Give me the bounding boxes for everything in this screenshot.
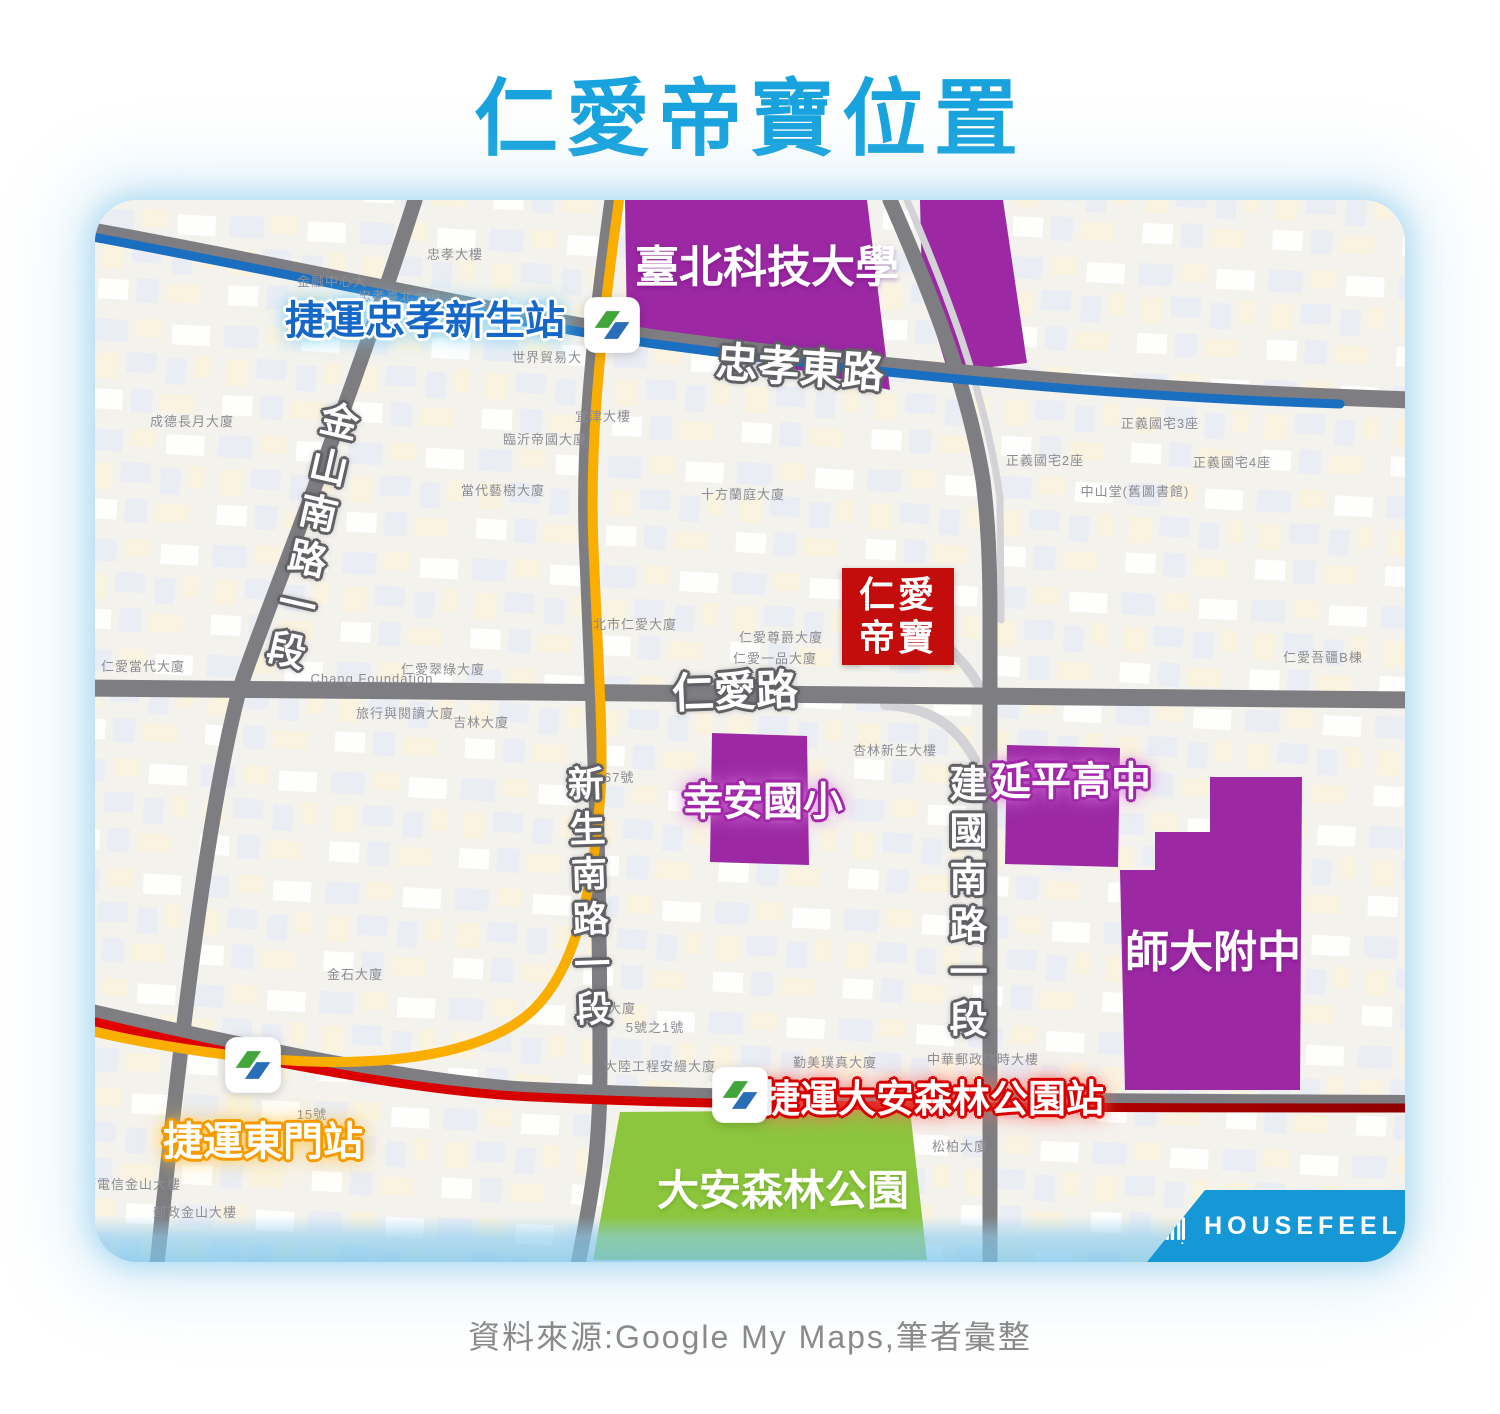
building-label: 中華電信金山大樓 <box>95 1178 181 1192</box>
place-label-shida-fuzhong: 師大附中 <box>1125 930 1301 976</box>
road-label-xinsheng-south-road-sec1: 新生南路一段 <box>563 764 610 1035</box>
station-label-mrt-zhongxiao-xinsheng: 捷運忠孝新生站 <box>285 300 565 342</box>
map-labels-layer: 忠孝大樓金融中心大忠孝臺北大廈世界貿易大宜津大樓成德長月大廈臨沂帝國大廈當代藝樹… <box>95 200 1405 1262</box>
housefeel-brand-text: HOUSEFEEL <box>1204 1212 1402 1241</box>
renai-dibao-badge: 仁愛 帝寶 <box>842 568 954 665</box>
building-label: 當代藝樹大廈 <box>461 484 545 498</box>
building-label: 松柏大廈 <box>932 1140 988 1154</box>
station-label-mrt-dongmen: 捷運東門站 <box>163 1121 363 1163</box>
building-label: 中山堂(舊圖書館) <box>1081 485 1190 499</box>
building-label: 十方蘭庭大廈 <box>701 488 785 502</box>
road-label-renai-road: 仁愛路 <box>671 668 798 716</box>
building-label: 大陸工程安縵大廈 <box>604 1060 716 1074</box>
building-label: 5號之1號 <box>626 1021 684 1035</box>
building-label: 金石大廈 <box>327 968 383 982</box>
road-label-jianguo-south-road-sec1: 建國南路一段 <box>943 764 983 1046</box>
mrt-station-icon-daan-forest-park <box>711 1066 769 1124</box>
taipei-metro-logo-icon <box>583 296 641 354</box>
building-label: 正義國宅4座 <box>1193 456 1271 470</box>
source-caption: 資料來源:Google My Maps,筆者彙整 <box>0 1312 1500 1358</box>
taipei-metro-logo-icon <box>224 1036 282 1094</box>
building-label: 正義國宅3座 <box>1121 417 1199 431</box>
building-label: 仁愛翠綠大廈 <box>401 663 485 677</box>
building-label: 正義國宅2座 <box>1006 454 1084 468</box>
place-label-xingan-elementary: 幸安國小 <box>683 781 843 823</box>
place-label-daan-forest-park: 大安森林公園 <box>657 1169 909 1213</box>
building-label: 中華郵政瑞時大樓 <box>927 1053 1039 1067</box>
place-label-taipei-tech: 臺北科技大學 <box>635 245 899 291</box>
building-label: 臨沂帝國大廈 <box>503 433 587 447</box>
building-label: 仁愛當代大廈 <box>101 660 185 674</box>
building-label: 杏林新生大樓 <box>853 744 937 758</box>
page-title: 仁愛帝寶位置 <box>0 52 1500 173</box>
badge-line1: 仁愛 <box>859 574 937 616</box>
building-label: 成德長月大廈 <box>150 415 234 429</box>
taipei-metro-logo-icon <box>711 1066 769 1124</box>
building-label: 仁愛尊爵大廈 <box>739 631 823 645</box>
building-label: 仁愛吾疆B棟 <box>1283 651 1363 665</box>
road-label-jinshan-south-road-sec1: 金山南路一段 <box>256 396 358 680</box>
map: 忠孝大樓金融中心大忠孝臺北大廈世界貿易大宜津大樓成德長月大廈臨沂帝國大廈當代藝樹… <box>95 200 1405 1262</box>
mrt-station-icon-zhongxiao-xinsheng <box>583 296 641 354</box>
building-label: 仁愛一品大廈 <box>733 652 817 666</box>
mrt-station-icon-dongmen <box>224 1036 282 1094</box>
road-label-zhongxiao-east-road: 忠孝東路 <box>715 340 886 396</box>
building-label: 勤美璞真大廈 <box>793 1056 877 1070</box>
building-label: 世界貿易大 <box>512 351 582 365</box>
building-label: 北市仁愛大廈 <box>593 618 677 632</box>
building-label: 宜津大樓 <box>575 410 631 424</box>
building-label: 吉林大廈 <box>453 716 509 730</box>
station-label-mrt-daan-forest-park: 捷運大安森林公園站 <box>762 1081 1104 1121</box>
place-label-yanping-high: 延平高中 <box>991 761 1151 803</box>
badge-line2: 帝寶 <box>859 617 937 659</box>
building-label: 忠孝大樓 <box>427 248 483 262</box>
building-label: 旅行與閱讀大廈 <box>356 707 454 721</box>
building-label: 金融中心大 <box>297 275 367 289</box>
